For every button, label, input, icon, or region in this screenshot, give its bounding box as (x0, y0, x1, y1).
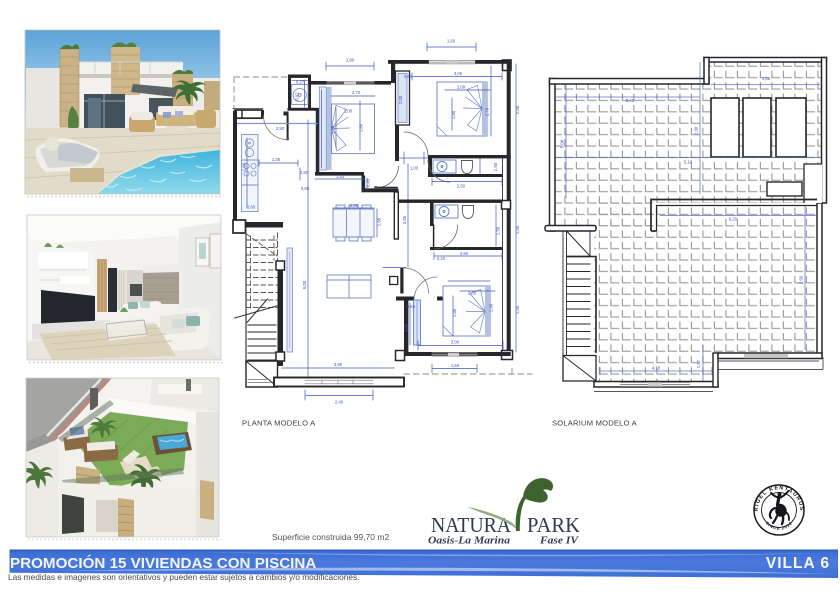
svg-text:3,85: 3,85 (402, 215, 407, 224)
svg-text:2,50: 2,50 (276, 126, 285, 131)
svg-text:1,90: 1,90 (489, 303, 494, 312)
svg-text:VILLA 6: VILLA 6 (766, 555, 830, 572)
svg-text:Fase IV: Fase IV (539, 535, 580, 547)
svg-text:2,30: 2,30 (694, 126, 699, 135)
svg-text:3,00: 3,00 (451, 340, 460, 345)
svg-text:2,00: 2,00 (344, 109, 353, 114)
svg-text:0,80: 0,80 (300, 170, 309, 175)
svg-text:5,10: 5,10 (684, 160, 693, 165)
svg-text:Las medidas e imagenes son ori: Las medidas e imagenes son orientativos … (8, 572, 359, 582)
svg-text:PLANTA MODELO A: PLANTA MODELO A (242, 419, 316, 428)
svg-text:1,50: 1,50 (515, 305, 520, 314)
svg-text:1,65: 1,65 (762, 76, 771, 81)
svg-text:1,90: 1,90 (346, 58, 355, 63)
svg-text:1,50: 1,50 (496, 226, 501, 235)
svg-text:0,65: 0,65 (404, 74, 413, 79)
svg-text:2,50: 2,50 (799, 275, 804, 284)
svg-text:2,00: 2,00 (468, 291, 477, 296)
svg-text:SOLARIUM MODELO A: SOLARIUM MODELO A (552, 419, 638, 428)
svg-text:3,90: 3,90 (334, 362, 343, 367)
svg-text:1,60: 1,60 (447, 39, 456, 44)
svg-text:2,50: 2,50 (457, 184, 466, 189)
svg-text:PROMOCIÓN 15 VIVIENDAS CON PIS: PROMOCIÓN 15 VIVIENDAS CON PISCINA (10, 554, 316, 572)
svg-text:1,66: 1,66 (242, 162, 247, 171)
svg-text:1,50: 1,50 (515, 225, 520, 234)
svg-text:1,57: 1,57 (696, 359, 701, 368)
svg-text:1,50: 1,50 (493, 162, 498, 171)
svg-text:5,00: 5,00 (560, 139, 565, 148)
svg-text:1,80: 1,80 (452, 308, 457, 317)
svg-text:0,92: 0,92 (295, 92, 300, 101)
svg-text:1,10: 1,10 (331, 125, 336, 134)
svg-text:2,85: 2,85 (350, 203, 359, 208)
svg-text:2,00: 2,00 (457, 85, 466, 90)
svg-text:1,60: 1,60 (377, 217, 382, 226)
svg-text:1,93: 1,93 (336, 174, 345, 179)
svg-text:0,80: 0,80 (301, 186, 310, 191)
svg-text:1,80: 1,80 (451, 110, 456, 119)
svg-text:Oasis-La Marina: Oasis-La Marina (428, 535, 511, 547)
svg-text:1,80: 1,80 (359, 123, 364, 132)
svg-text:PARK: PARK (527, 513, 580, 537)
svg-text:1,00: 1,00 (410, 166, 419, 171)
svg-text:2,70: 2,70 (352, 90, 361, 95)
svg-text:3,00: 3,00 (454, 71, 463, 76)
svg-text:2,40: 2,40 (335, 400, 344, 405)
svg-text:4,10: 4,10 (652, 366, 661, 371)
svg-text:0,60: 0,60 (247, 205, 256, 210)
svg-text:6,00: 6,00 (302, 280, 307, 289)
svg-text:0,45: 0,45 (366, 178, 371, 187)
svg-text:1,85: 1,85 (404, 323, 409, 332)
svg-text:2,70: 2,70 (485, 107, 490, 116)
svg-text:5,45: 5,45 (626, 98, 635, 103)
svg-text:2,00: 2,00 (515, 105, 520, 114)
svg-text:2,00: 2,00 (398, 95, 403, 104)
svg-text:2,50: 2,50 (460, 251, 469, 256)
svg-text:0,20: 0,20 (437, 256, 446, 261)
svg-text:1,35: 1,35 (272, 157, 281, 162)
svg-text:Superficie construida 99,70 m2: Superficie construida 99,70 m2 (272, 532, 389, 542)
svg-text:1,50: 1,50 (451, 363, 460, 368)
svg-text:6,20: 6,20 (729, 217, 738, 222)
svg-text:0,66: 0,66 (407, 304, 416, 309)
